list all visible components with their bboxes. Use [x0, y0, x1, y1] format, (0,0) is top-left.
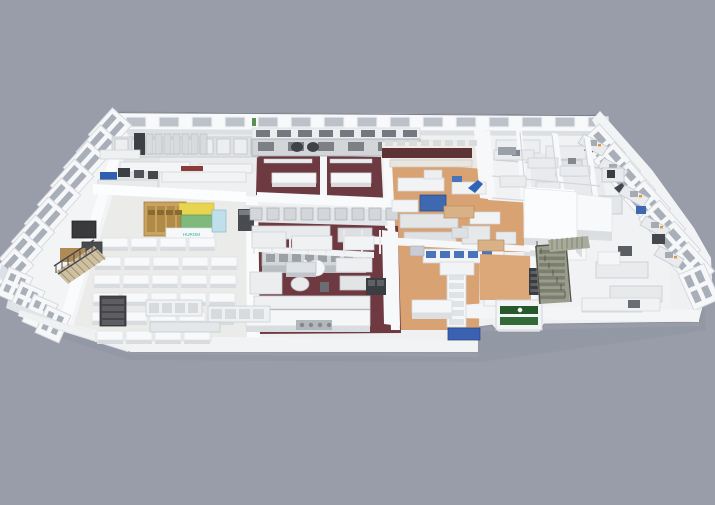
svg-text:HUROM: HUROM: [183, 232, 200, 237]
